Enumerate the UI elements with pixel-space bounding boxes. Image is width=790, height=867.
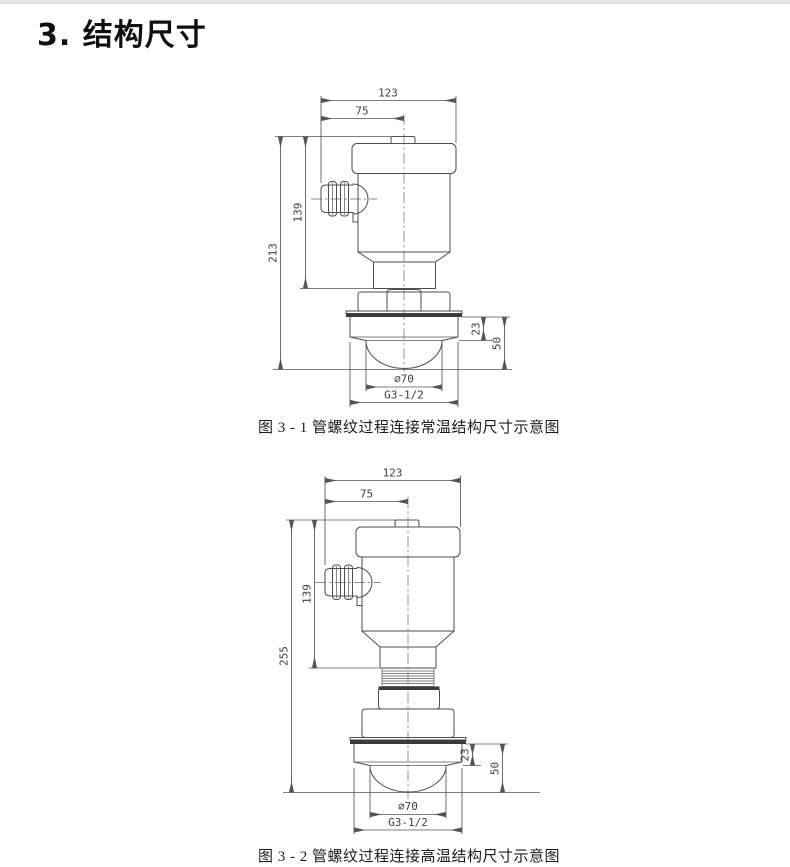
dim-total-width: 123 — [378, 87, 398, 100]
dim-lens-diameter: ∅70 — [394, 373, 414, 386]
dim-antenna-height: 50 — [491, 337, 504, 350]
dimension-lines — [292, 481, 503, 831]
figure1-drawing: 123 75 213 139 23 50 ∅70 G3-1/2 — [255, 85, 575, 415]
section-title: 3. 结构尺寸 — [37, 10, 207, 54]
dim-upper-height: 139 — [292, 203, 305, 223]
figure2-drawing: 123 75 255 139 23 50 ∅70 G3-1/2 — [255, 463, 575, 843]
device-outline — [321, 137, 462, 369]
dimension-labels: 123 75 213 139 23 50 ∅70 G3-1/2 — [267, 87, 504, 402]
dim-lens-diameter: ∅70 — [398, 800, 418, 813]
dim-antenna-height: 50 — [489, 762, 502, 775]
dim-total-width: 123 — [383, 467, 403, 480]
dim-upper-height: 139 — [301, 584, 314, 604]
document-page: 3. 结构尺寸 — [0, 0, 790, 867]
figure2-caption: 图 3 - 2 管螺纹过程连接高温结构尺寸示意图 — [244, 845, 574, 866]
extension-lines — [283, 476, 540, 834]
dim-thread-size: G3-1/2 — [388, 816, 428, 829]
dim-total-height: 213 — [267, 243, 280, 263]
dim-thread-size: G3-1/2 — [384, 389, 424, 402]
center-lines — [315, 497, 408, 799]
dimension-labels: 123 75 255 139 23 50 ∅70 G3-1/2 — [278, 467, 502, 830]
page-top-edge — [0, 0, 790, 4]
dim-body-width: 75 — [360, 488, 373, 501]
dim-body-width: 75 — [355, 105, 368, 118]
dim-flange-height: 23 — [470, 322, 483, 335]
dim-total-height: 255 — [278, 646, 291, 666]
dim-flange-height: 23 — [459, 748, 472, 761]
figure1-caption: 图 3 - 1 管螺纹过程连接常温结构尺寸示意图 — [244, 416, 574, 437]
device-outline — [325, 520, 466, 792]
